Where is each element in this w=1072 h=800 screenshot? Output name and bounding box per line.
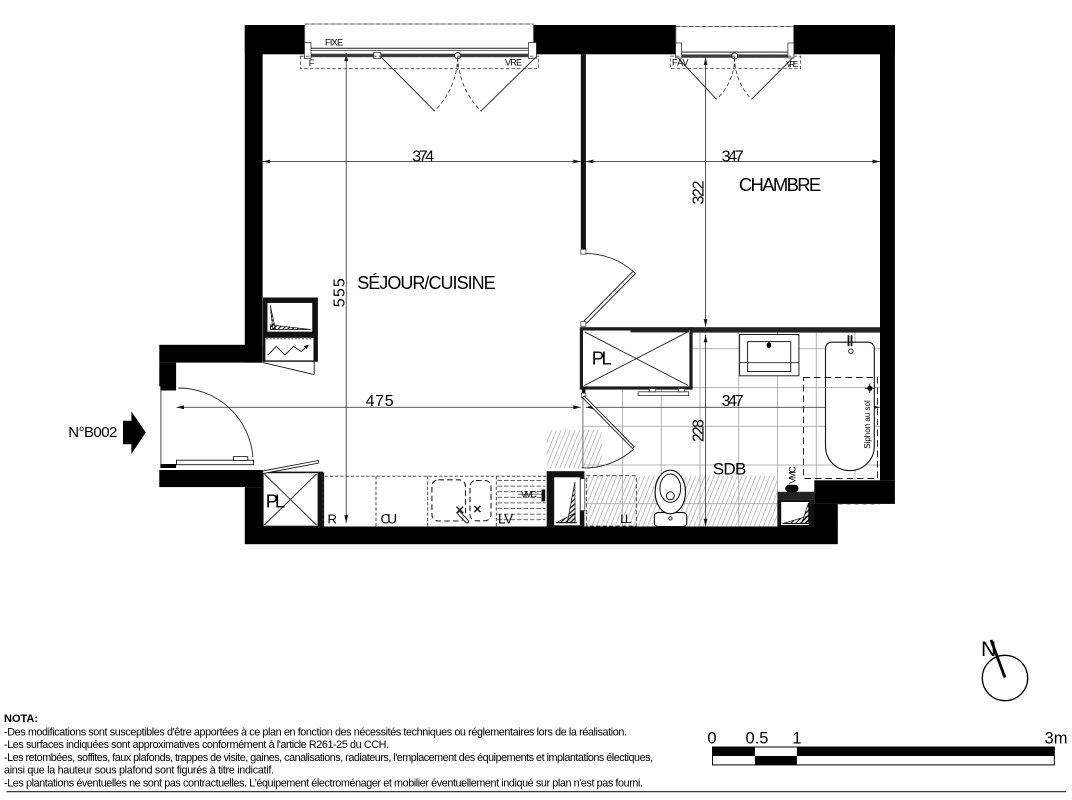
svg-text:PL: PL [592,348,612,369]
svg-text:-Les plantations éventuelles n: -Les plantations éventuelles ne sont pas… [4,777,643,789]
svg-text:347: 347 [722,393,744,410]
svg-text:322: 322 [690,180,707,204]
svg-text:228: 228 [690,419,707,442]
svg-text:SDB: SDB [713,460,747,479]
svg-text:347: 347 [722,149,744,166]
svg-text:Siphon au sol: Siphon au sol [863,400,872,449]
svg-text:VMC: VMC [787,466,797,484]
svg-text:FIXE: FIXE [325,37,343,47]
svg-text:0.5: 0.5 [746,730,769,748]
svg-text:VMC: VMC [521,490,538,500]
svg-text:0: 0 [707,730,716,748]
svg-text:VRE: VRE [786,60,798,69]
svg-text:3m: 3m [1045,730,1068,748]
svg-text:ainsi que la hauteur sous plaf: ainsi que la hauteur sous plafond sont f… [4,765,274,777]
svg-text:LL: LL [620,512,632,526]
svg-text:VRE: VRE [505,58,522,68]
svg-text:N: N [981,638,996,661]
svg-text:FAV: FAV [672,58,689,68]
svg-text:1: 1 [792,730,801,748]
svg-text:N°B002: N°B002 [68,424,117,441]
svg-text:SÉJOUR/CUISINE: SÉJOUR/CUISINE [357,273,496,293]
svg-text:-Les surfaces indiquées sont a: -Les surfaces indiquées sont approximati… [4,739,389,751]
svg-text:R: R [328,511,337,526]
svg-text:475: 475 [366,393,394,410]
svg-text:LV: LV [498,511,513,526]
svg-text:555: 555 [331,278,348,307]
svg-text:PL: PL [266,491,285,512]
svg-text:-Les retombées, soffites, faux: -Les retombées, soffites, faux plafonds,… [4,752,653,764]
svg-text:CHAMBRE: CHAMBRE [739,174,821,195]
svg-text:-Des modifications sont suscep: -Des modifications sont susceptibles d'ê… [4,727,627,739]
svg-text:374: 374 [412,149,434,166]
svg-text:CU: CU [381,511,398,526]
svg-text:F: F [309,58,315,68]
svg-text:NOTA:: NOTA: [4,713,38,725]
